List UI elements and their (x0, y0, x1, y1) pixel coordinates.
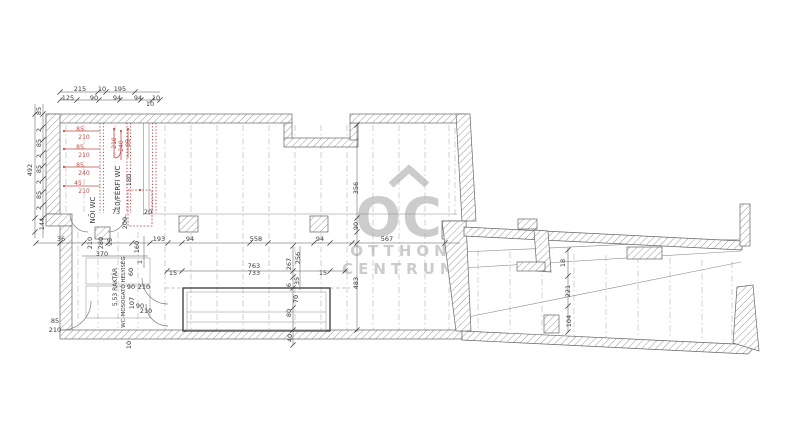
dim-label: 85 (35, 139, 43, 147)
wall-right-top-stub (740, 204, 750, 246)
dim-label: 40 (286, 334, 294, 342)
floor-plan-drawing: OC OTTHON CENTRUM (0, 0, 800, 443)
floor-plan-page: OC OTTHON CENTRUM (0, 0, 800, 443)
dim-label: 210 (78, 152, 90, 159)
dim-label: 195 (114, 85, 126, 93)
dim-label: 94 (316, 235, 324, 243)
dim-label: 492 (26, 164, 34, 176)
dim-label: 85 (51, 317, 59, 325)
dim-label: 15 (169, 269, 177, 277)
dim-label: 10 (146, 100, 154, 108)
dim-label: 85 (35, 165, 43, 173)
pillar (310, 216, 328, 232)
dim-label: 558 (250, 235, 262, 243)
dim-label: NŐI WC (88, 196, 97, 223)
dim-label: 60 (127, 268, 135, 276)
dim-label: 10 (125, 341, 133, 349)
dim-label: 280 (97, 237, 105, 249)
dim-label: 210 (140, 307, 152, 315)
dim-label: 10/FÉRFI WC (113, 166, 122, 211)
dim-label: 90 (127, 283, 135, 291)
wall-top-right (350, 114, 464, 123)
dim-label: 144 (38, 218, 46, 230)
dim-label: 85 (35, 107, 43, 115)
dim-label: 567 (381, 235, 393, 243)
dim-label: 210 (86, 237, 94, 249)
dim-label: 95 (106, 238, 114, 246)
dim-label: 73 (112, 208, 120, 216)
wall-left-upper (46, 114, 60, 214)
dim-label: 221 (564, 285, 572, 297)
dimension-labels-group: 2151019512590949410108528528528524921448… (26, 85, 573, 349)
red-partitions-group (63, 123, 156, 226)
pillar (179, 216, 198, 232)
dim-label: 2 (35, 206, 43, 210)
dim-label: 160 (133, 241, 141, 253)
dim-label: 80 (285, 309, 293, 317)
dim-label: 35 (293, 277, 301, 285)
dim-label: 210 (138, 283, 150, 291)
dim-label: 90 (352, 222, 360, 230)
wall-right-section-top (464, 227, 742, 250)
dim-label: 215 (74, 85, 86, 93)
watermark-roof-icon (391, 169, 427, 185)
dim-label: 1 (136, 260, 144, 264)
dim-label: 2 (35, 128, 43, 132)
dim-label: 85 (35, 191, 43, 199)
dim-label: 10 (98, 85, 106, 93)
dim-label: 210 (49, 326, 61, 334)
wall-top-left (46, 114, 292, 123)
door-arc (142, 278, 168, 304)
dim-label: 70 (292, 295, 300, 303)
dimension-ticks-group (32, 89, 570, 347)
dim-label: 90 (90, 94, 98, 102)
platform-group (165, 288, 350, 331)
dim-label: 15 (319, 269, 327, 277)
dim-label: 356 (352, 182, 360, 194)
dim-label: 200 (121, 217, 129, 229)
dim-label: 125 (62, 94, 74, 102)
dim-label: 45 (74, 180, 82, 187)
dim-label: 85 (76, 162, 84, 169)
dim-label: WC-MOSOGATÓ HELYISÉG (119, 256, 127, 327)
dim-label: 94 (113, 94, 121, 102)
dim-label: 2 (35, 154, 43, 158)
dim-label: 256 (294, 252, 302, 264)
dim-label: 210 (111, 137, 118, 149)
dim-label: 6 (285, 283, 293, 287)
dim-label: 85 (125, 139, 132, 147)
wall-corner-right (733, 285, 759, 351)
wall-bottom-sloped (462, 331, 756, 354)
dim-label: 85 (76, 144, 84, 151)
dim-label: 180 (125, 174, 133, 186)
dim-label: 20 (144, 208, 152, 216)
dim-label: 104 (565, 315, 573, 327)
door-arc (70, 214, 88, 232)
watermark-line2: CENTRUM (342, 260, 460, 278)
dim-label: 240 (118, 140, 125, 152)
dim-label: 267 (285, 258, 293, 270)
dim-label: 483 (352, 277, 360, 289)
pillar (544, 315, 559, 333)
watermark-line1: OTTHON (350, 242, 451, 260)
dim-label: 94 (186, 235, 194, 243)
dim-label: 2 (35, 180, 43, 184)
wall-hall-right (456, 114, 476, 221)
dim-label: 210 (78, 188, 90, 195)
dim-label: 107 (128, 297, 136, 309)
dim-label: 370 (96, 250, 108, 258)
dim-label: 18 (559, 259, 567, 267)
dim-label: 240 (78, 170, 90, 177)
dim-label: 94 (134, 94, 142, 102)
wall-top-recess (284, 138, 358, 147)
dim-label: 85 (76, 126, 84, 133)
dim-label: 733 (248, 269, 260, 277)
dim-label: 5.53 RAKTÁR (112, 268, 119, 306)
dim-label: 193 (153, 235, 165, 243)
dim-label: 210 (78, 134, 90, 141)
dim-label: 36 (57, 235, 65, 243)
